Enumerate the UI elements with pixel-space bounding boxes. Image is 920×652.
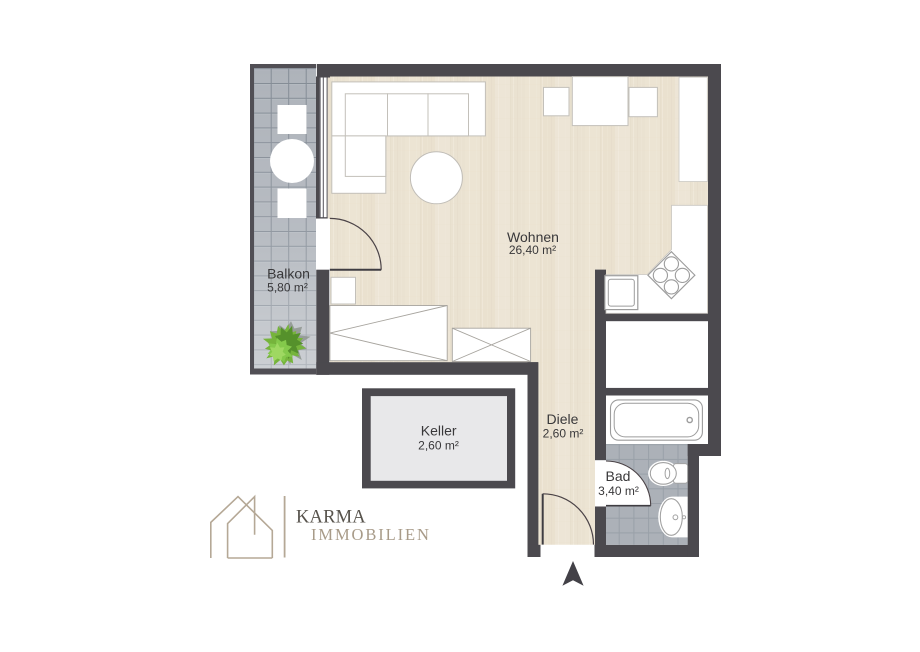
svg-text:IMMOBILIEN: IMMOBILIEN xyxy=(311,525,431,544)
svg-text:2,60 m²: 2,60 m² xyxy=(418,439,459,453)
svg-text:3,40 m²: 3,40 m² xyxy=(598,484,639,498)
svg-text:Keller: Keller xyxy=(421,423,457,439)
svg-text:Balkon: Balkon xyxy=(267,266,310,282)
svg-text:5,80 m²: 5,80 m² xyxy=(267,281,308,295)
svg-text:Diele: Diele xyxy=(547,411,579,427)
svg-text:Bad: Bad xyxy=(606,468,631,484)
svg-text:26,40 m²: 26,40 m² xyxy=(509,243,556,257)
svg-text:2,60 m²: 2,60 m² xyxy=(543,427,584,441)
